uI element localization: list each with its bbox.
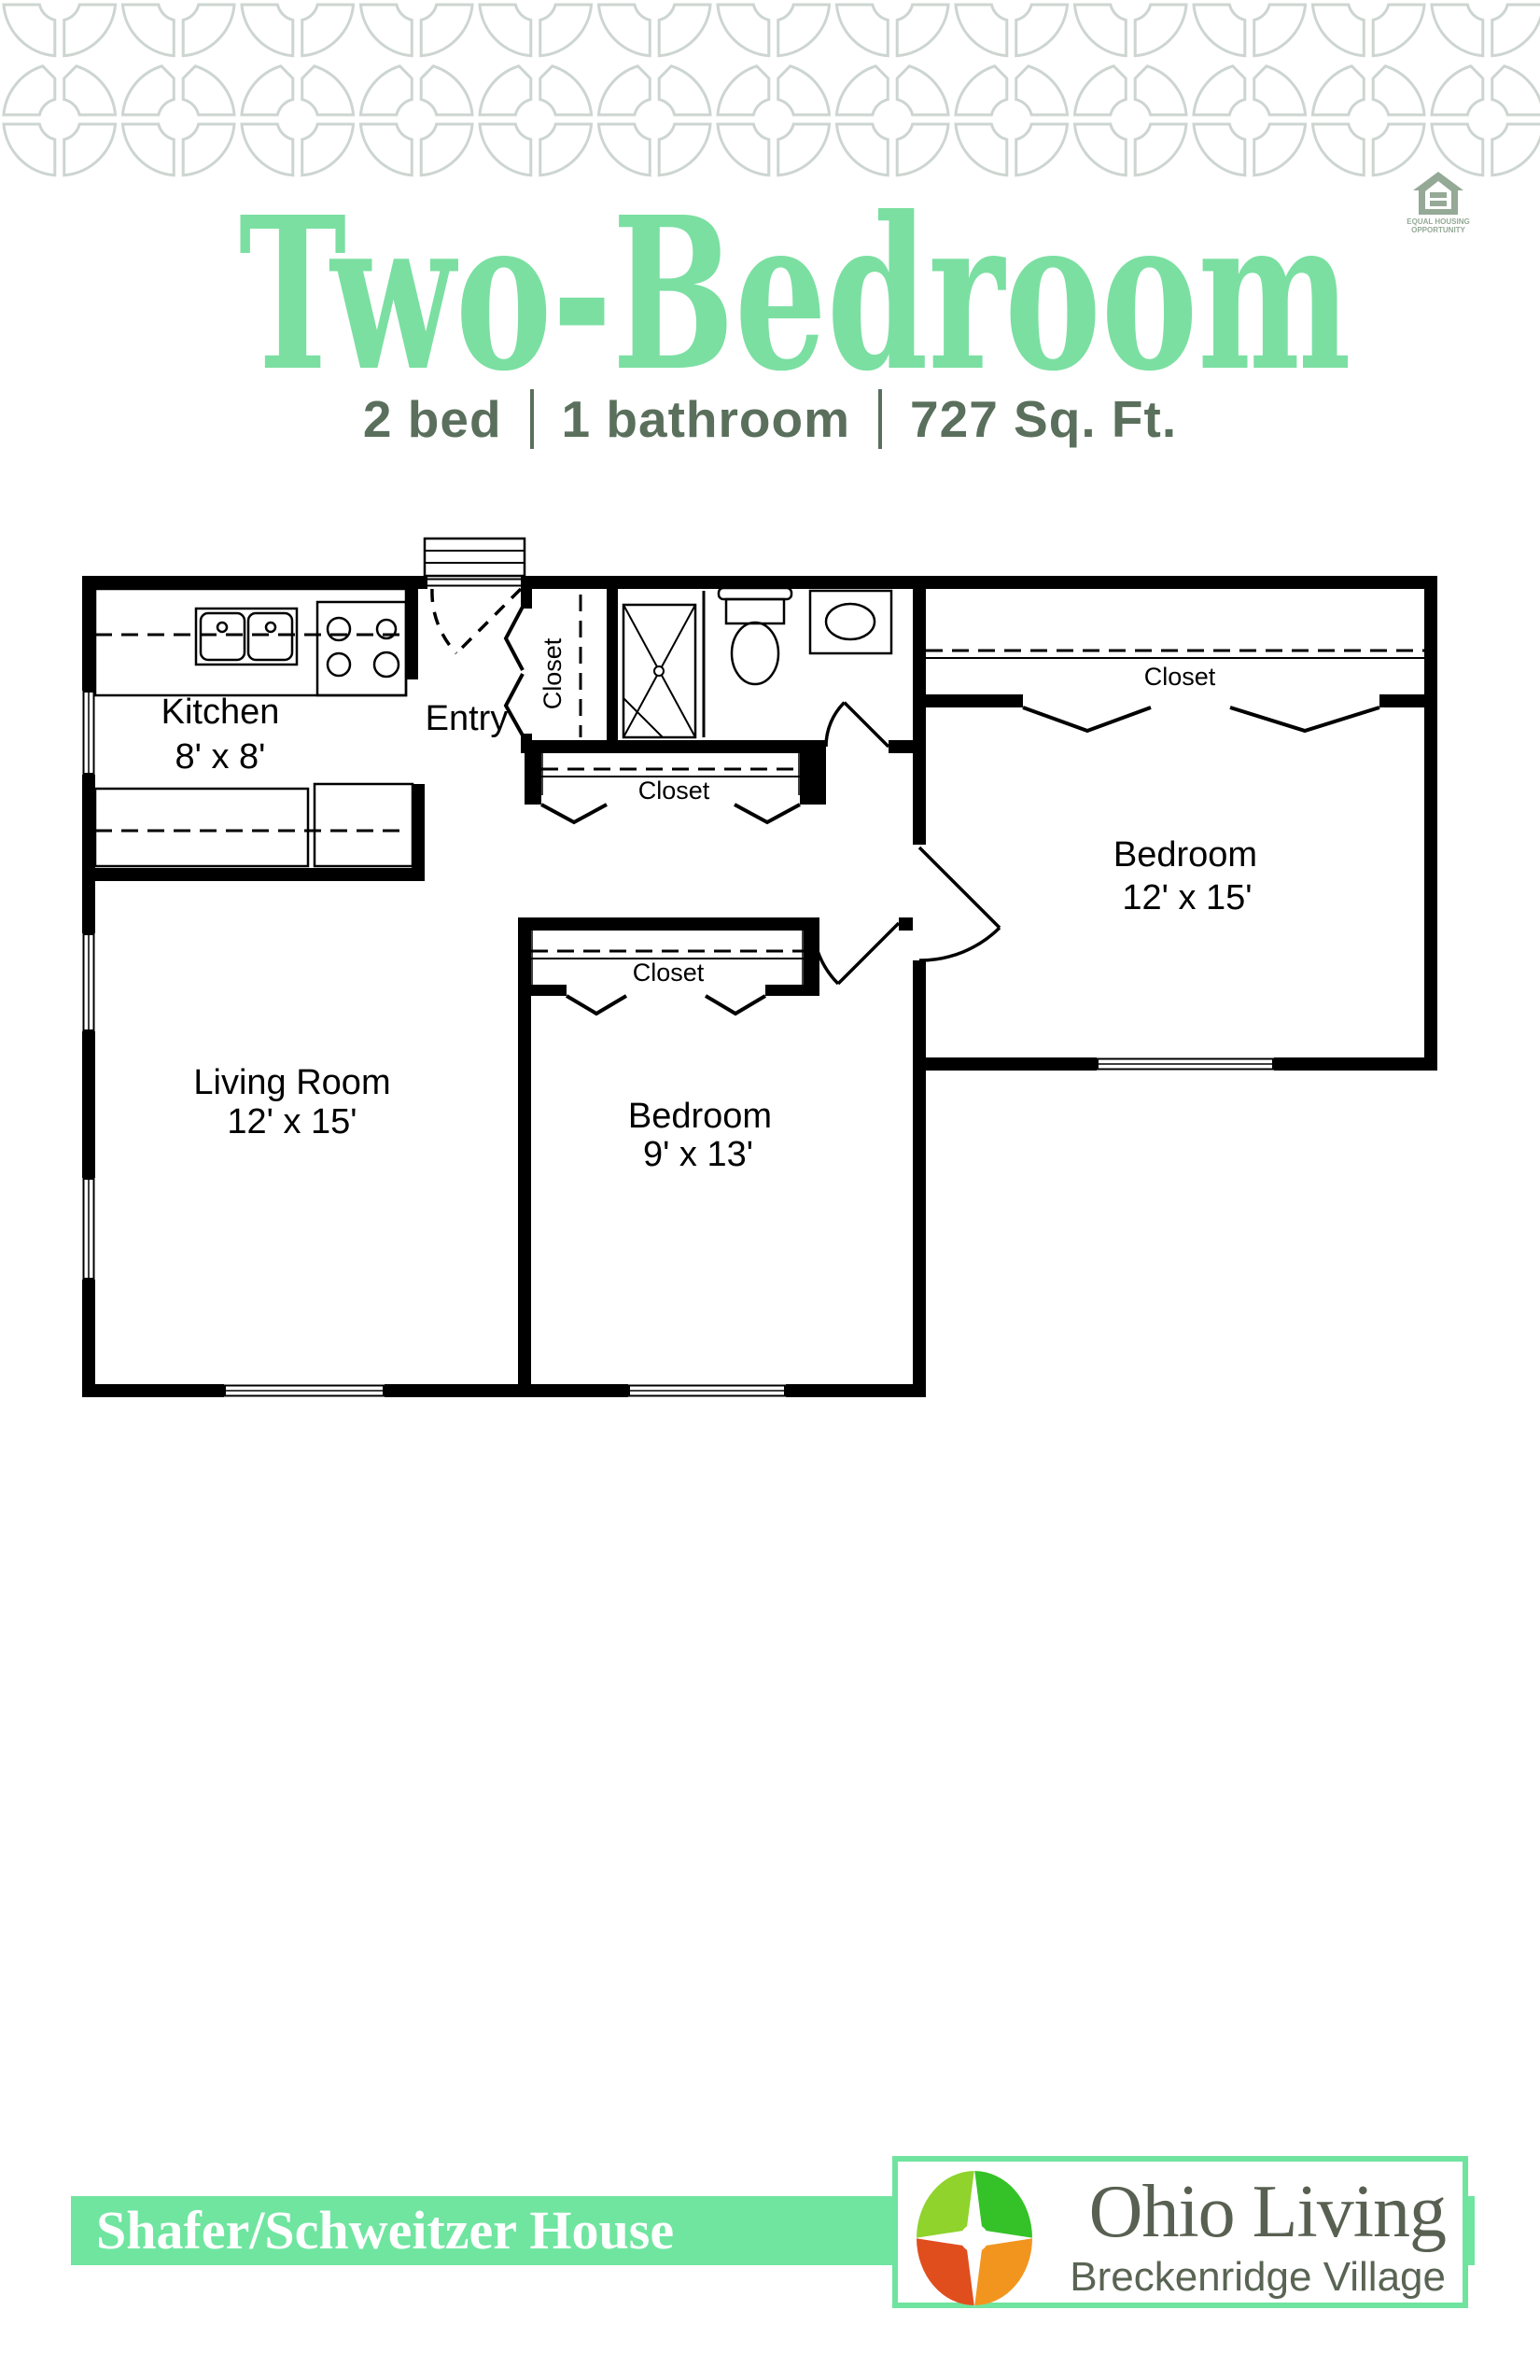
community-name: Breckenridge Village <box>1070 2257 1446 2298</box>
bedroom2-dims: 9' x 13' <box>643 1135 753 1174</box>
bathroom-sink <box>810 591 891 653</box>
hall-closet-label: Closet <box>638 777 710 805</box>
kitchen-dims: 8' x 8' <box>175 737 266 777</box>
entry-label: Entry <box>426 699 509 738</box>
window <box>1098 1059 1273 1070</box>
bathroom-fixtures <box>581 588 891 737</box>
entry-threshold <box>427 580 521 586</box>
bedroom2-closet-label: Closet <box>633 959 705 987</box>
toilet <box>719 588 791 684</box>
stove <box>317 602 406 695</box>
window <box>225 1386 384 1396</box>
window <box>629 1386 785 1396</box>
bathroom-door <box>826 703 889 747</box>
living-room-label: Living Room <box>193 1063 390 1102</box>
kitchen-sink <box>196 609 297 665</box>
window <box>84 1179 94 1279</box>
window <box>84 934 94 1030</box>
bedroom1-closet-label: Closet <box>1144 663 1216 691</box>
flyer-page: EQUAL HOUSING OPPORTUNITY Two-Bedroom 2 … <box>0 0 1540 2380</box>
bedroom2-label: Bedroom <box>628 1097 772 1136</box>
entry-closet-label: Closet <box>539 637 567 709</box>
house-name: Shafer/Schweitzer House <box>96 2196 674 2265</box>
bifold-doors <box>506 607 1379 1014</box>
bedroom1-door <box>919 847 1000 960</box>
walls <box>82 576 1437 1397</box>
kitchen-counter-end <box>315 784 413 866</box>
ohio-living-logo-box: Ohio Living Breckenridge Village <box>892 2156 1468 2308</box>
window <box>84 692 94 774</box>
floor-plan: Kitchen 8' x 8' Entry Living Room 12' x … <box>0 0 1540 2380</box>
kitchen-label: Kitchen <box>161 693 280 732</box>
bedroom1-dims: 12' x 15' <box>1122 878 1252 917</box>
kitchen-counter-bottom <box>95 789 308 866</box>
ohio-living-mark-icon <box>911 2168 1038 2308</box>
bedroom1-label: Bedroom <box>1113 835 1257 875</box>
bedroom2-door <box>813 923 899 984</box>
entry-stoop <box>425 539 525 576</box>
brand-name: Ohio Living <box>1089 2175 1446 2249</box>
kitchen-counter-top <box>95 589 406 695</box>
shower <box>623 605 695 737</box>
living-room-dims: 12' x 15' <box>227 1102 357 1141</box>
